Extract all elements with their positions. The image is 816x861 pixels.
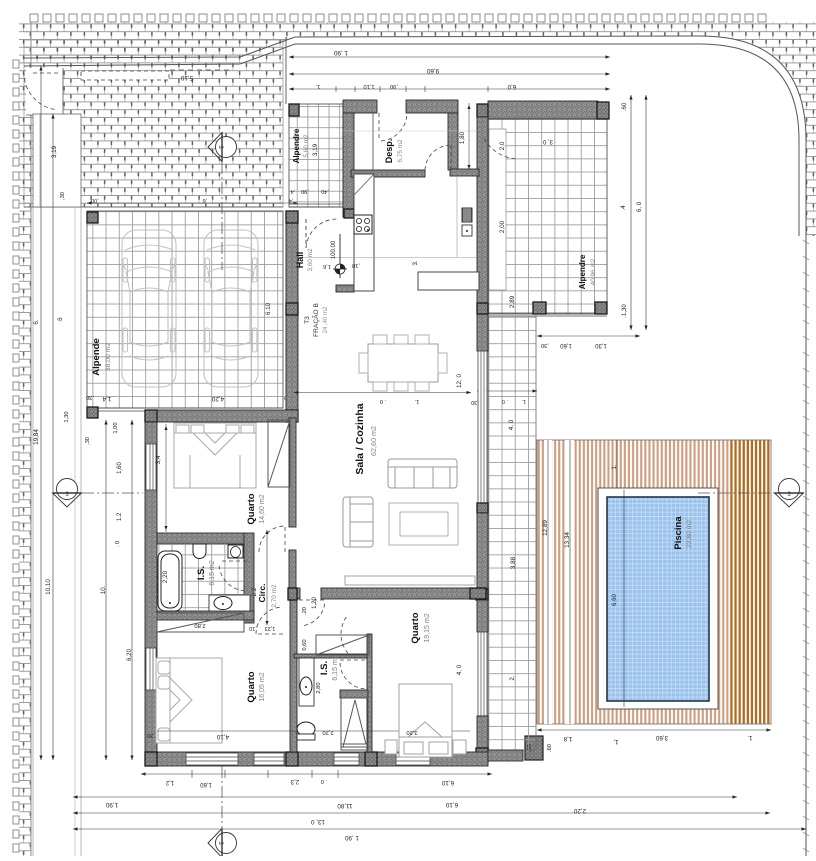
svg-text:Quarto: Quarto [246,671,257,702]
svg-text:5,10: 5,10 [180,74,193,81]
svg-text:,30: ,30 [541,342,549,348]
svg-text:Hall: Hall [295,252,305,269]
svg-text:5,60 m2: 5,60 m2 [303,134,310,158]
svg-text:6,60: 6,60 [611,593,618,606]
svg-text:2,20: 2,20 [573,807,586,814]
svg-text:1,80: 1,80 [459,131,466,144]
svg-text:6,15 m2: 6,15 m2 [332,655,339,680]
svg-text:Alpendre: Alpendre [292,128,301,163]
svg-text:1.: 1. [611,464,618,470]
svg-text:62,60 m2: 62,60 m2 [369,426,378,456]
svg-text:1 ,90: 1 ,90 [345,834,360,841]
svg-text:. 0: . 0 [380,398,386,404]
svg-text:,00: ,00 [91,197,99,203]
svg-text:,30: ,30 [85,437,91,445]
svg-text:1,60: 1,60 [200,781,212,787]
svg-text:,10: ,10 [352,262,360,268]
svg-text:6, 0: 6, 0 [636,201,643,212]
svg-text:1,: 1, [613,738,619,745]
svg-text:1,2: 1,2 [165,779,174,785]
svg-text:. 0: . 0 [115,541,121,547]
svg-text:,90: ,90 [390,83,398,89]
svg-text:6,75 m2: 6,75 m2 [397,139,404,163]
svg-text:10.: 10. [100,585,107,594]
svg-text:1.: 1. [414,398,419,404]
svg-text:Piscina: Piscina [673,516,684,550]
svg-text:3,4: 3,4 [155,455,162,464]
svg-text:.60: .60 [547,744,553,752]
svg-text:3,60 m2: 3,60 m2 [307,248,314,272]
svg-text:,4: ,4 [291,188,296,194]
svg-text:I.S.: I.S. [319,661,330,675]
svg-text:1,30: 1,30 [64,411,70,422]
svg-text:1,8: 1,8 [563,735,572,742]
svg-text:12,89: 12,89 [542,520,549,536]
svg-text:4, 0: 4, 0 [456,664,463,675]
svg-text:19,84: 19,84 [33,429,40,445]
svg-text:1,20: 1,20 [312,597,318,609]
svg-text:2,80: 2,80 [316,682,322,693]
svg-text:6,10: 6,10 [441,779,454,786]
svg-text:2,70 m2: 2,70 m2 [271,584,278,608]
svg-text:I.S.: I.S. [196,566,207,580]
svg-text:4,10: 4,10 [216,733,229,740]
svg-text:1.: 1. [315,83,320,89]
svg-text:Alpendre: Alpendre [578,254,587,289]
svg-text:6.: 6. [33,319,40,325]
svg-text:9,60: 9,60 [426,67,439,74]
svg-text:T3: T3 [304,316,311,324]
svg-text:2,3: 2,3 [290,778,299,784]
svg-text:Quarto: Quarto [410,612,421,643]
svg-text:3,88: 3,88 [510,556,517,569]
svg-text:2,89: 2,89 [509,295,516,308]
svg-text:,30: ,30 [86,394,94,400]
svg-text:1,23: 1,23 [265,625,276,631]
svg-text:4, 0: 4, 0 [508,419,515,430]
svg-text:3, 0: 3, 0 [542,138,553,144]
svg-text:12, 0: 12, 0 [456,374,463,389]
svg-text:1,30: 1,30 [595,342,607,348]
svg-text:13,34: 13,34 [564,532,571,548]
svg-text:1.2: 1.2 [117,512,123,521]
svg-text:Desp.: Desp. [384,139,394,164]
svg-text:.60: .60 [621,102,628,111]
svg-text:,30: ,30 [60,192,66,200]
svg-text:Sala / Cozinha: Sala / Cozinha [354,403,366,474]
svg-text:0,60: 0,60 [302,639,308,650]
svg-text:.6: .6 [57,317,64,323]
svg-text:1,10: 1,10 [363,83,374,89]
svg-text:2,0: 2,0 [499,141,506,150]
svg-text:,30: ,30 [471,399,479,405]
svg-text:6.10: 6.10 [265,302,272,315]
svg-text:. 0: . 0 [502,398,508,404]
svg-text:100.00: 100.00 [331,240,337,259]
svg-text:,6: ,6 [203,197,208,203]
svg-text:23,80 m2: 23,80 m2 [686,520,693,549]
svg-text:1,60: 1,60 [117,462,123,474]
svg-text:2,80: 2,80 [194,622,205,628]
svg-text:40,96 m2: 40,96 m2 [590,258,597,285]
svg-text:. 0: . 0 [321,778,327,784]
svg-text:38,00 m2: 38,00 m2 [105,343,112,372]
svg-text:16,05 m2: 16,05 m2 [259,672,266,701]
svg-text:6,15 m2: 6,15 m2 [209,560,216,585]
svg-text:2,00: 2,00 [499,220,506,233]
svg-text:11,80: 11,80 [337,802,353,809]
svg-text:4,20: 4,20 [211,395,224,402]
svg-text:6,0: 6,0 [507,83,516,90]
svg-text:2,20: 2,20 [162,570,169,583]
svg-text:13, 0: 13, 0 [311,818,326,825]
svg-text:14,60 m2: 14,60 m2 [259,494,266,523]
svg-text:Quarto: Quarto [246,493,257,524]
svg-text:,40: ,40 [321,188,329,194]
svg-text:,30: ,30 [147,732,155,738]
svg-text:.4: .4 [620,205,627,211]
svg-text:6,20: 6,20 [126,648,133,661]
svg-text:FRAÇÃO B: FRAÇÃO B [311,303,320,337]
svg-text:1.: 1. [747,734,753,741]
svg-text:2.: 2. [509,675,516,681]
svg-text:1,90: 1,90 [105,801,118,808]
svg-text:24 ,40 m2: 24 ,40 m2 [323,306,329,333]
svg-text:1,6: 1,6 [323,263,331,269]
svg-text:3,60: 3,60 [655,734,668,741]
svg-text:3,19: 3,19 [51,145,58,158]
svg-text:3,19: 3,19 [312,143,319,156]
svg-text:2,20: 2,20 [322,729,333,735]
svg-text:1,00: 1,00 [113,422,119,433]
svg-text:Alpende: Alpende [91,338,102,375]
svg-text:10,10: 10,10 [45,579,52,595]
svg-text:19,15 m2: 19,15 m2 [424,613,431,642]
svg-text:.20: .20 [302,607,308,615]
svg-text:,90: ,90 [301,188,309,194]
svg-text:1,4: 1,4 [102,395,111,402]
svg-text:,10: ,10 [249,625,257,631]
svg-text:Circ.: Circ. [257,584,267,603]
svg-text:.1,30: .1,30 [622,304,628,318]
svg-text:3.: 3. [412,260,419,266]
svg-text:6,10: 6,10 [445,801,458,808]
svg-text:1 ,90: 1 ,90 [334,49,349,56]
svg-text:3,20: 3,20 [406,729,417,735]
svg-text:1,60: 1,60 [560,342,572,348]
svg-text:1.: 1. [521,398,526,404]
